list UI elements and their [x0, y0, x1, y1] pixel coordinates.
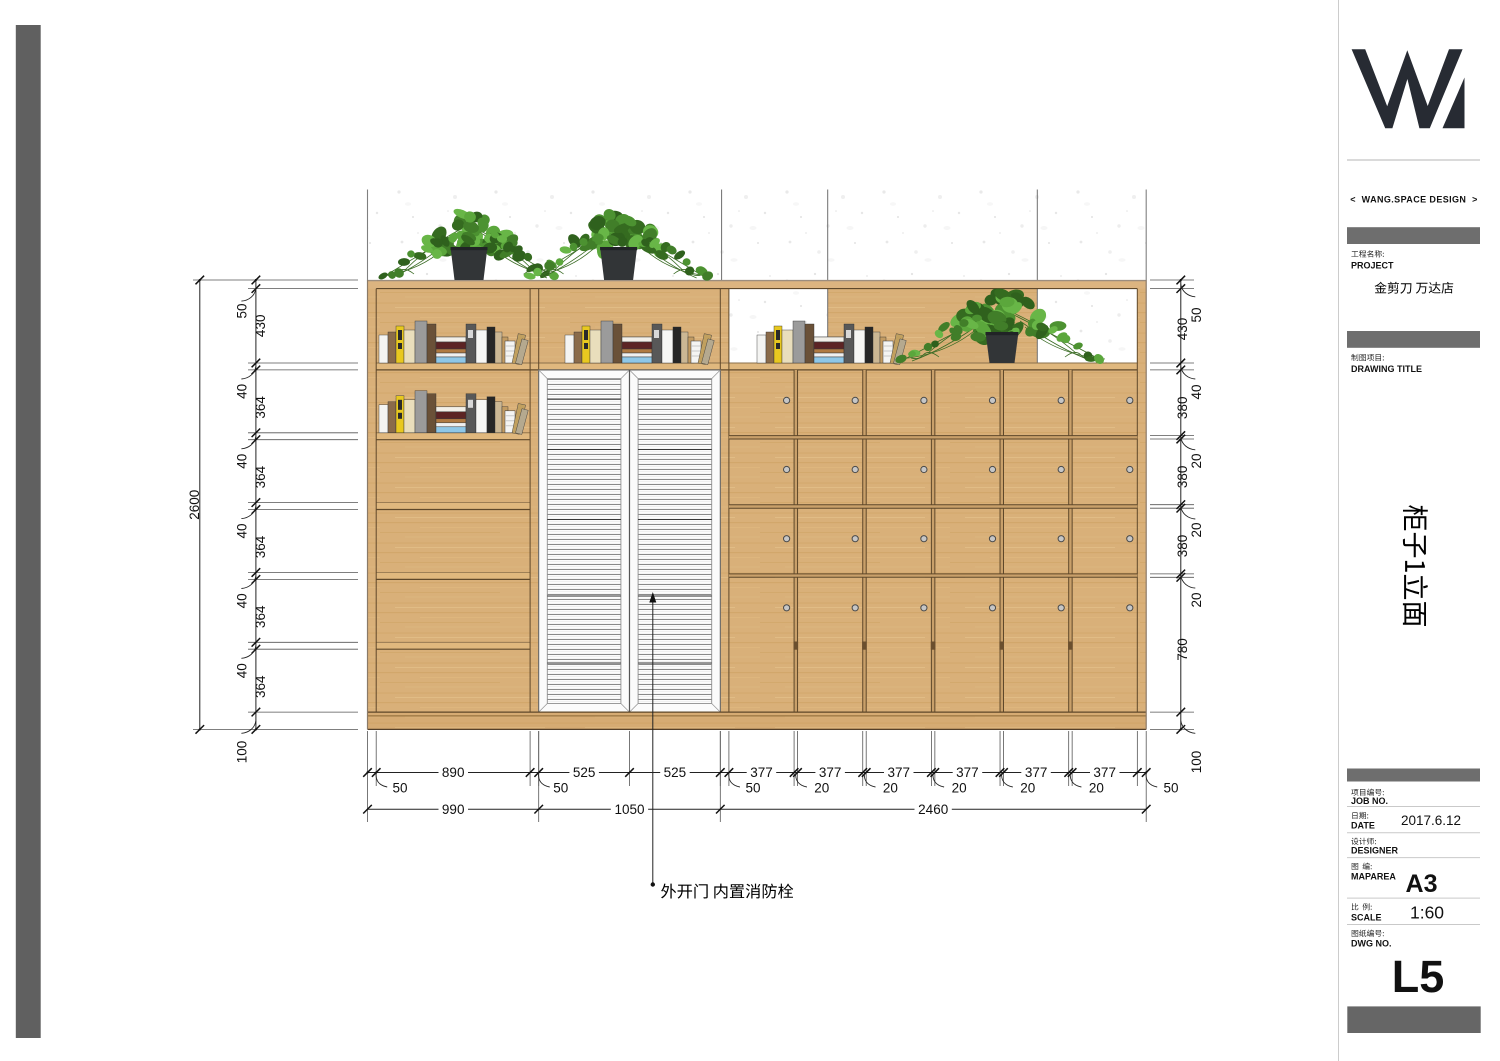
- svg-text:780: 780: [1175, 638, 1190, 661]
- svg-text:40: 40: [235, 523, 250, 538]
- svg-text:20: 20: [1020, 781, 1035, 796]
- svg-text:380: 380: [1175, 397, 1190, 420]
- svg-text:20: 20: [1089, 781, 1104, 796]
- svg-text:525: 525: [573, 765, 596, 780]
- svg-text:2600: 2600: [187, 490, 202, 520]
- svg-text:A3: A3: [1406, 870, 1438, 898]
- svg-text:377: 377: [1093, 765, 1116, 780]
- svg-text:< WANG.SPACE DESIGN >: < WANG.SPACE DESIGN >: [1350, 195, 1478, 205]
- svg-text:377: 377: [750, 765, 773, 780]
- svg-text:40: 40: [235, 454, 250, 469]
- svg-text:380: 380: [1175, 535, 1190, 558]
- svg-text:990: 990: [442, 802, 465, 817]
- svg-text:DWG NO.: DWG NO.: [1351, 939, 1392, 949]
- svg-text:100: 100: [1189, 751, 1204, 774]
- svg-text:DRAWING TITLE: DRAWING TITLE: [1351, 364, 1422, 374]
- svg-text:364: 364: [253, 396, 268, 419]
- svg-text:50: 50: [392, 781, 407, 796]
- svg-text:20: 20: [1189, 453, 1204, 468]
- svg-text:40: 40: [235, 384, 250, 399]
- svg-text:SCALE: SCALE: [1351, 913, 1382, 923]
- svg-text:20: 20: [952, 781, 967, 796]
- svg-text:364: 364: [253, 465, 268, 488]
- svg-text:20: 20: [1189, 522, 1204, 537]
- svg-text:430: 430: [1175, 318, 1190, 341]
- svg-text:40: 40: [1189, 384, 1204, 399]
- svg-text:380: 380: [1175, 466, 1190, 489]
- svg-text:50: 50: [1189, 307, 1204, 322]
- svg-text:L5: L5: [1392, 951, 1445, 1002]
- svg-text:PROJECT: PROJECT: [1351, 261, 1394, 271]
- svg-text:364: 364: [253, 605, 268, 628]
- svg-text:430: 430: [253, 315, 268, 338]
- svg-text:1:60: 1:60: [1410, 903, 1444, 923]
- svg-text:50: 50: [553, 781, 568, 796]
- svg-text:40: 40: [235, 593, 250, 608]
- svg-text:364: 364: [253, 535, 268, 558]
- svg-text:2017.6.12: 2017.6.12: [1401, 813, 1461, 828]
- svg-text:377: 377: [956, 765, 979, 780]
- svg-text:DATE: DATE: [1351, 821, 1375, 831]
- svg-text:364: 364: [253, 675, 268, 698]
- svg-text:JOB NO.: JOB NO.: [1351, 796, 1388, 806]
- svg-text:525: 525: [664, 765, 687, 780]
- svg-text:377: 377: [888, 765, 911, 780]
- svg-text:DESIGNER: DESIGNER: [1351, 846, 1399, 856]
- svg-text:890: 890: [442, 765, 465, 780]
- svg-text:50: 50: [1163, 781, 1178, 796]
- svg-text:100: 100: [235, 741, 250, 764]
- svg-text:2460: 2460: [918, 802, 948, 817]
- svg-text:20: 20: [814, 781, 829, 796]
- svg-text:1050: 1050: [614, 802, 644, 817]
- svg-text:20: 20: [883, 781, 898, 796]
- svg-text:50: 50: [235, 303, 250, 318]
- svg-text:MAPAREA: MAPAREA: [1351, 872, 1396, 882]
- svg-text:20: 20: [1189, 592, 1204, 607]
- svg-text:377: 377: [819, 765, 842, 780]
- svg-text:377: 377: [1025, 765, 1048, 780]
- svg-text:50: 50: [745, 781, 760, 796]
- svg-text:40: 40: [235, 663, 250, 678]
